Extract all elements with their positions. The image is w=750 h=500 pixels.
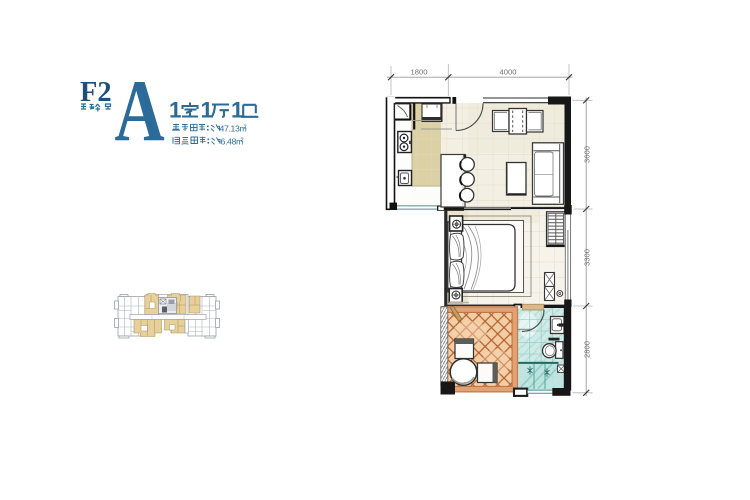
svg-text:1: 1 (169, 98, 182, 123)
svg-text:3300: 3300 (583, 249, 592, 266)
svg-text:2: 2 (241, 138, 244, 144)
svg-text:4000: 4000 (500, 68, 517, 77)
svg-text:3600: 3600 (583, 146, 592, 163)
svg-text:1: 1 (231, 98, 244, 123)
svg-text:2: 2 (244, 125, 247, 131)
svg-text:1800: 1800 (411, 68, 428, 77)
svg-text:F2: F2 (80, 76, 112, 108)
svg-text:A: A (115, 62, 165, 160)
svg-text:47.13m: 47.13m (220, 123, 247, 133)
svg-text:1: 1 (201, 98, 214, 123)
svg-text:2800: 2800 (583, 341, 592, 358)
